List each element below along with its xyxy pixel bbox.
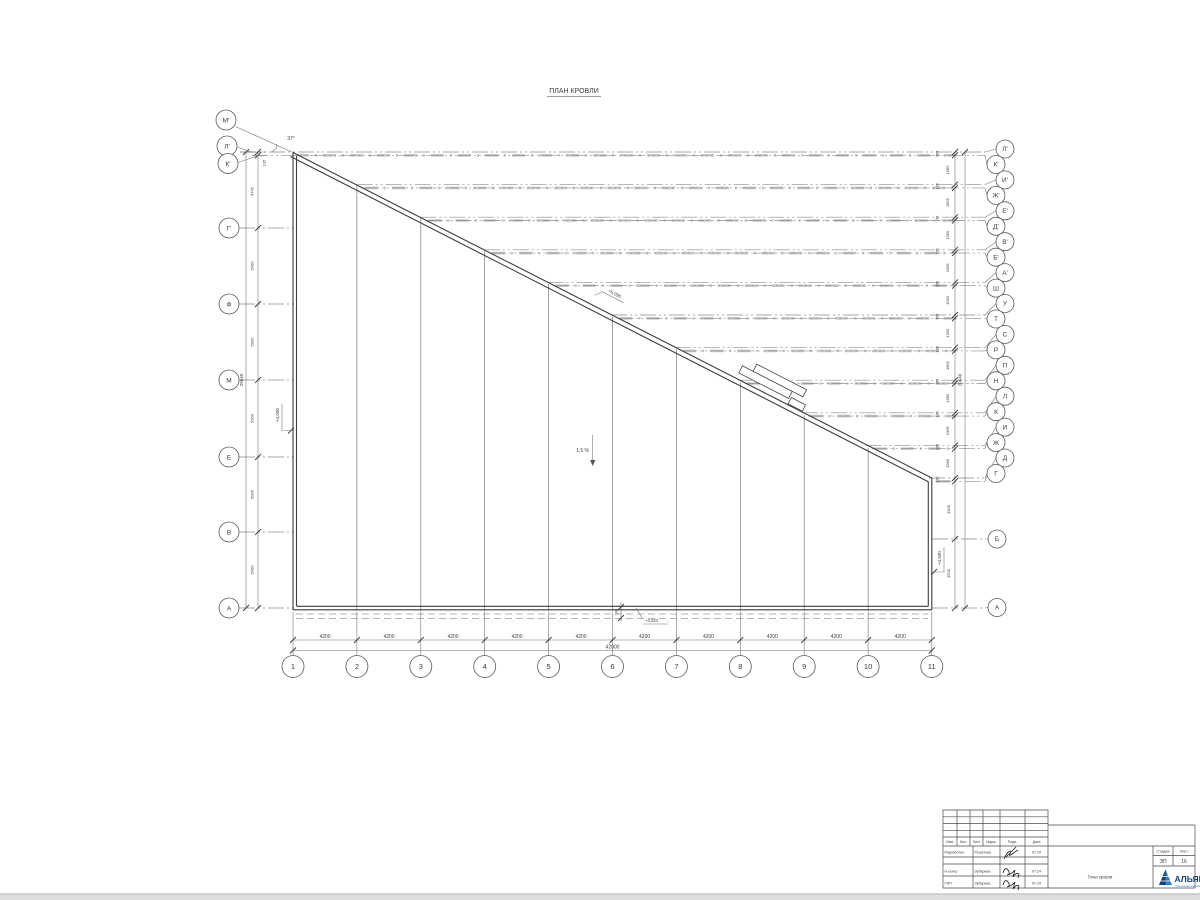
axis-bubble: А' — [996, 264, 1014, 282]
svg-text:В': В' — [1002, 239, 1008, 246]
sheet-value: 16 — [1181, 859, 1187, 865]
svg-text:4200: 4200 — [319, 634, 330, 640]
svg-text:А': А' — [1002, 270, 1008, 277]
svg-text:М': М' — [223, 117, 230, 124]
svg-text:195: 195 — [936, 477, 940, 483]
svg-text:Ф: Ф — [227, 301, 232, 308]
axis-bubble: 6 — [602, 656, 624, 678]
svg-text:+4,334: +4,334 — [645, 618, 659, 623]
axis-bubble: 3 — [410, 656, 432, 678]
svg-text:И: И — [1003, 424, 1008, 431]
roof-plan-canvas: ПЛАН КРОВЛИ 37° 1,5 % +4,500 — [0, 0, 1200, 900]
svg-text:Решетова: Решетова — [975, 851, 991, 855]
axis-bubble: К — [987, 403, 1005, 421]
svg-text:Дата: Дата — [1033, 840, 1041, 844]
svg-text:Зубарева: Зубарева — [975, 882, 991, 886]
svg-text:1965: 1965 — [945, 393, 950, 403]
svg-text:11: 11 — [928, 662, 936, 671]
svg-text:195: 195 — [936, 444, 940, 450]
svg-text:А: А — [227, 605, 232, 612]
svg-text:42000: 42000 — [606, 644, 620, 650]
svg-text:07.24: 07.24 — [1032, 851, 1041, 855]
axis-bubble: Ф — [219, 294, 239, 314]
svg-text:№док.: №док. — [986, 840, 997, 844]
axis-bubble: Д — [996, 449, 1014, 467]
sheet-label: Лист — [1180, 850, 1189, 854]
svg-text:8: 8 — [738, 662, 742, 671]
axis-bubble: Б' — [987, 248, 1005, 266]
axis-bubble: 1 — [282, 656, 304, 678]
axis-bubble: И' — [996, 171, 1014, 189]
axis-bubble: Л' — [996, 140, 1014, 158]
svg-text:Б: Б — [995, 536, 999, 543]
svg-text:Л': Л' — [1002, 146, 1008, 153]
svg-text:Г: Г — [994, 471, 998, 478]
svg-text:4200: 4200 — [767, 634, 778, 640]
svg-text:195: 195 — [936, 314, 940, 320]
axis-bubble: Ж' — [987, 186, 1005, 204]
svg-text:4200: 4200 — [383, 634, 394, 640]
axis-bubble: Е' — [996, 202, 1014, 220]
svg-text:К: К — [994, 409, 998, 416]
svg-text:07.24: 07.24 — [1032, 870, 1041, 874]
svg-text:+4,590: +4,590 — [937, 551, 942, 565]
axis-bubble: Г' — [219, 218, 239, 238]
svg-text:В: В — [227, 529, 231, 536]
axis-bubble: Л — [996, 387, 1014, 405]
axis-bubble: 11 — [921, 656, 943, 678]
svg-text:10: 10 — [864, 662, 872, 671]
drawing-title: ПЛАН КРОВЛИ — [547, 88, 601, 97]
svg-text:4500: 4500 — [946, 568, 951, 578]
svg-text:Г': Г' — [227, 225, 232, 232]
svg-text:195: 195 — [936, 411, 940, 417]
elevation-diagonal: +5,090 — [595, 284, 627, 309]
axis-bubble: К' — [987, 156, 1005, 174]
axis-bubble: Л' — [217, 136, 237, 156]
svg-text:Лист: Лист — [973, 840, 981, 844]
company-logo: АЛЬЯНС строительная компания — [1159, 870, 1200, 888]
svg-text:1965: 1965 — [945, 295, 950, 305]
svg-text:Зубарева: Зубарева — [975, 870, 991, 874]
svg-text:195: 195 — [936, 281, 940, 287]
axis-bubble: А — [219, 598, 239, 618]
stage-label: Стадия — [1157, 850, 1170, 854]
axis-bubble: М — [219, 370, 239, 390]
stage-value: ЭП — [1159, 859, 1167, 865]
svg-text:4305: 4305 — [946, 504, 951, 514]
svg-text:1965: 1965 — [945, 165, 950, 175]
axis-bubble: Н — [987, 372, 1005, 390]
axis-bubbles-left: М' Л' К' Г' Ф М Е В А — [216, 110, 258, 618]
svg-text:1965: 1965 — [945, 360, 950, 370]
svg-text:И': И' — [1002, 177, 1008, 184]
svg-text:5000: 5000 — [250, 489, 255, 499]
svg-text:1965: 1965 — [945, 197, 950, 207]
svg-text:5000: 5000 — [250, 413, 255, 423]
svg-text:Ж: Ж — [993, 440, 999, 447]
elevation-bottom: +4,334 100 — [615, 602, 669, 624]
elevation-left: +4,500 — [275, 404, 294, 434]
svg-text:Кол.: Кол. — [960, 840, 967, 844]
doc-title: План кровли — [1088, 875, 1113, 880]
axis-bubble: 5 — [538, 656, 560, 678]
svg-text:4200: 4200 — [447, 634, 458, 640]
svg-text:Б': Б' — [993, 254, 999, 261]
svg-text:Т: Т — [994, 316, 998, 323]
svg-text:1965: 1965 — [945, 230, 950, 240]
svg-text:4200: 4200 — [511, 634, 522, 640]
slope-label: 1,5 % — [576, 448, 589, 454]
sheet-frame-bottom — [0, 894, 1200, 900]
axis-bubble: В — [219, 522, 239, 542]
axis-bubble: 7 — [665, 656, 687, 678]
svg-text:4200: 4200 — [639, 634, 650, 640]
axis-bubble: А — [988, 599, 1006, 617]
svg-text:4200: 4200 — [575, 634, 586, 640]
svg-text:195: 195 — [262, 159, 267, 166]
svg-text:07.24: 07.24 — [1032, 882, 1041, 886]
svg-text:А: А — [995, 605, 1000, 612]
svg-text:100: 100 — [615, 609, 619, 615]
svg-text:4200: 4200 — [895, 634, 906, 640]
axis-bubble: 9 — [793, 656, 815, 678]
svg-text:4200: 4200 — [703, 634, 714, 640]
svg-text:2: 2 — [355, 662, 359, 671]
company-tagline: строительная компания — [1175, 885, 1200, 888]
axis-bubbles-right: Л' К' И' Ж' Е' Д' В' Б' А' Ш У Т С Р П Н… — [985, 140, 1014, 617]
svg-text:К': К' — [225, 161, 230, 168]
svg-text:4200: 4200 — [831, 634, 842, 640]
axis-bubble: Б — [988, 530, 1006, 548]
svg-text:Изм.: Изм. — [946, 840, 954, 844]
title-block: Изм. Кол. Лист №док. Подп. Дата Разработ… — [943, 810, 1200, 890]
svg-text:Е: Е — [227, 454, 232, 461]
svg-text:6: 6 — [610, 662, 614, 671]
svg-text:Н: Н — [994, 378, 999, 385]
drawing-sheet: ПЛАН КРОВЛИ 37° 1,5 % +4,500 — [0, 0, 1200, 900]
svg-text:+4,500: +4,500 — [275, 408, 280, 422]
svg-text:Подп.: Подп. — [1008, 840, 1018, 844]
roof-axis-lines-lower — [239, 155, 985, 608]
svg-text:9: 9 — [802, 662, 806, 671]
axis-bubble: М' — [216, 110, 236, 130]
svg-text:Н.контр: Н.контр — [945, 870, 958, 874]
svg-text:1: 1 — [291, 662, 295, 671]
axis-bubble: У — [996, 295, 1014, 313]
svg-text:С: С — [1003, 332, 1008, 339]
axis-bubble: В' — [996, 233, 1014, 251]
svg-text:1965: 1965 — [945, 263, 950, 273]
axis-bubble: Е — [219, 447, 239, 467]
axis-bubble: 10 — [857, 656, 879, 678]
axis-bubble: Ш — [987, 279, 1005, 297]
svg-text:1965: 1965 — [945, 426, 950, 436]
svg-text:Д': Д' — [993, 224, 999, 231]
axis-bubble: С — [996, 325, 1014, 343]
svg-text:ГИП: ГИП — [945, 882, 953, 886]
svg-text:П: П — [1003, 363, 1008, 370]
svg-text:4745: 4745 — [250, 186, 255, 196]
svg-text:195: 195 — [936, 248, 940, 254]
elevation-right: +4,590 — [931, 547, 944, 575]
axis-bubble: 2 — [346, 656, 368, 678]
axis-bubble: Ж — [987, 434, 1005, 452]
svg-text:Е': Е' — [1002, 208, 1008, 215]
svg-text:7: 7 — [674, 662, 678, 671]
svg-text:195: 195 — [936, 379, 940, 385]
angle-label: 37° — [287, 136, 295, 142]
svg-text:29640: 29640 — [239, 373, 244, 386]
axis-bubbles-bottom: 1 2 3 4 5 6 7 8 9 10 11 — [282, 656, 943, 678]
svg-text:1965: 1965 — [945, 458, 950, 468]
angle-annotation: 37° — [272, 136, 295, 152]
roof-outline — [236, 127, 933, 619]
svg-text:195: 195 — [936, 216, 940, 222]
svg-text:Л: Л — [1003, 393, 1007, 400]
svg-text:1965: 1965 — [945, 328, 950, 338]
svg-text:Л': Л' — [224, 143, 230, 150]
svg-text:5000: 5000 — [250, 565, 255, 575]
svg-text:5000: 5000 — [250, 261, 255, 271]
svg-text:4: 4 — [483, 662, 487, 671]
axis-bubble: Г — [987, 465, 1005, 483]
axis-bubble: Р — [987, 341, 1005, 359]
svg-text:+5,090: +5,090 — [607, 288, 622, 299]
svg-text:Р: Р — [994, 347, 998, 354]
svg-text:М: М — [226, 377, 231, 384]
svg-text:5: 5 — [547, 662, 551, 671]
axis-bubble: 8 — [729, 656, 751, 678]
axis-bubble: К' — [218, 154, 238, 174]
svg-text:5000: 5000 — [250, 337, 255, 347]
svg-text:Д: Д — [1003, 455, 1008, 462]
svg-text:Ш: Ш — [993, 285, 999, 292]
slope-annotation: 1,5 % — [576, 435, 595, 466]
axis-bubble: 4 — [474, 656, 496, 678]
axis-bubble: П — [996, 356, 1014, 374]
svg-text:Разработал: Разработал — [945, 851, 965, 855]
svg-text:К': К' — [993, 162, 998, 169]
axis-bubble: Т — [987, 310, 1005, 328]
axis-bubble: Д' — [987, 217, 1005, 235]
svg-text:195: 195 — [936, 346, 940, 352]
company-name: АЛЬЯНС — [1175, 874, 1200, 884]
page-title: ПЛАН КРОВЛИ — [549, 88, 599, 95]
svg-text:195: 195 — [936, 151, 940, 157]
axis-bubble: И — [996, 418, 1014, 436]
svg-text:195: 195 — [936, 183, 940, 189]
svg-text:3: 3 — [419, 662, 423, 671]
svg-text:Ж': Ж' — [992, 193, 999, 200]
signature-scribbles — [1003, 847, 1019, 890]
svg-text:29640: 29640 — [958, 373, 963, 386]
